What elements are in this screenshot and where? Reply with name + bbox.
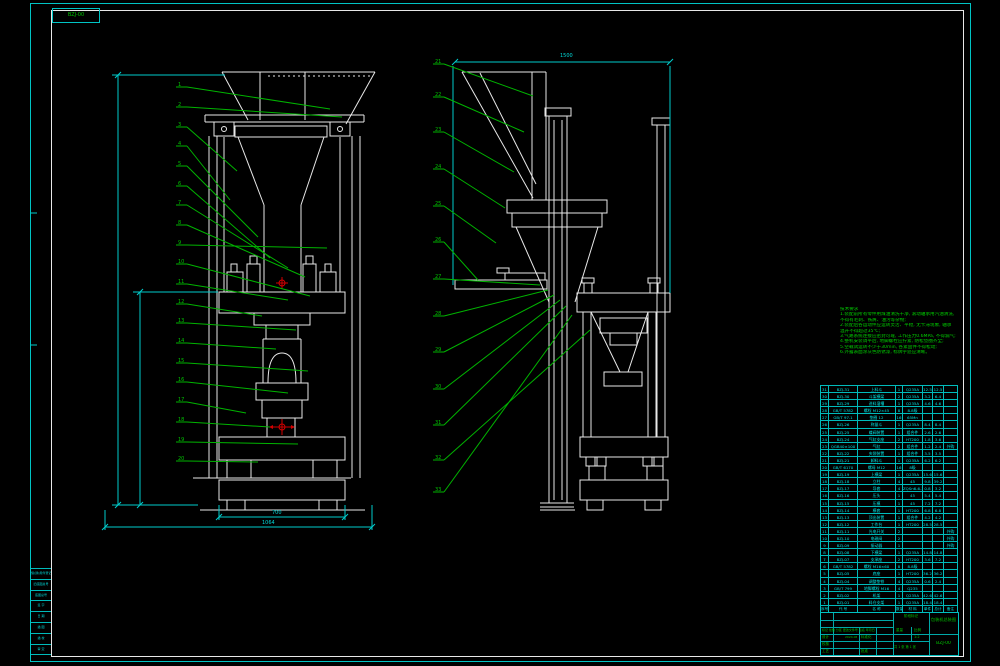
bom-cell: 4 [896, 585, 903, 592]
leader-line [444, 290, 548, 316]
bom-cell: 28.5 [933, 521, 944, 528]
bom-cell: BZJ-14 [829, 507, 858, 514]
bom-cell: 5.4 [923, 492, 933, 499]
bom-cell: 2 [896, 443, 903, 450]
balloon-number: 4 [178, 141, 181, 147]
bom-cell: 7 [821, 556, 829, 563]
bom-cell: 导套 [858, 485, 896, 492]
bom-cell: 进料溜槽 [858, 400, 896, 407]
bom-row: 26BZJ-26称量斗1Q235A8.48.4 [821, 421, 958, 428]
front-view [193, 72, 375, 510]
bom-cell: 14.8 [923, 549, 933, 556]
bom-cell: BZJ-29 [829, 400, 858, 407]
bom-cell: 卸料斗 [858, 457, 896, 464]
dim-inner-width: 700 [272, 511, 282, 516]
bom-cell: GB/T 6170 [829, 464, 858, 471]
balloon-number: 2 [178, 102, 181, 108]
technical-notes: 技术要求1.装配前所有零件用煤油清洗干净, 滚动轴承用汽油清洗, 不得有毛刺、铁… [840, 307, 960, 356]
bom-cell: Q235A [903, 400, 923, 407]
edge-strip-cell: 审 定 [31, 645, 51, 656]
balloon-number: 16 [178, 377, 184, 383]
bom-cell: BZJ-17 [829, 485, 858, 492]
bom-cell: GB/T 5782 [829, 407, 858, 414]
bom-cell: BZJ-01 [829, 599, 858, 606]
bom-cell: 1 [896, 386, 903, 393]
bom-cell: 3.5 [923, 450, 933, 457]
bom-cell: 11 [821, 528, 829, 535]
bom-cell [923, 528, 933, 535]
bom-cell: 1 [896, 500, 903, 507]
bom-cell: 39.2 [933, 478, 944, 485]
bom-cell [944, 414, 958, 421]
bom-cell [944, 492, 958, 499]
bom-cell: Q235A [903, 457, 923, 464]
bom-cell: 24 [821, 436, 829, 443]
bom-cell [944, 421, 958, 428]
leader-line [187, 461, 258, 462]
bom-cell [944, 556, 958, 563]
bom-cell [944, 450, 958, 457]
bom-row: 22BZJ-22夹袋装置1组合件3.53.5 [821, 450, 958, 457]
bom-cell: 31 [821, 386, 829, 393]
bom-cell: 4.2 [923, 514, 933, 521]
bom-cell [933, 535, 944, 542]
bom-row: 8BZJ-08下横梁1Q235A14.814.8 [821, 549, 958, 556]
bom-cell: 1 [896, 507, 903, 514]
bom-cell: 23 [821, 443, 829, 450]
tb-weight: 重量 [896, 628, 903, 633]
bom-cell: BZJ-26 [829, 421, 858, 428]
bom-cell: HT200 [903, 556, 923, 563]
bom-cell: GB/T 799 [829, 585, 858, 592]
balloon-number: 28 [435, 311, 441, 317]
bom-cell: 3.2 [933, 485, 944, 492]
leader-line [444, 300, 560, 389]
tb-approve: 批准 [861, 649, 868, 654]
leader-line [187, 87, 330, 109]
leader-line [187, 363, 308, 371]
balloon-number: 19 [178, 437, 184, 443]
bom-cell [944, 464, 958, 471]
bom-cell [944, 429, 958, 436]
bom-cell: BZJ-16 [829, 492, 858, 499]
bom-cell: 2 [896, 535, 903, 542]
bom-cell [944, 549, 958, 556]
bom-row: 10BZJ-10电磁阀2外购 [821, 535, 958, 542]
bom-cell [944, 407, 958, 414]
edge-strip: 借(通)用件登记旧底图总号底图总号签 字日 期描 图描 校审 定 [31, 568, 51, 656]
bom-cell: 0.6 [923, 578, 933, 585]
bom-cell: 1 [896, 429, 903, 436]
balloon-number: 22 [435, 92, 441, 98]
bom-cell: 压头 [858, 492, 896, 499]
bom-cell [923, 407, 933, 414]
bom-cell: 15 [821, 500, 829, 507]
bom-cell: 4 [821, 578, 829, 585]
leader-line [187, 442, 298, 444]
bom-cell: 16 [896, 414, 903, 421]
bom-cell: 压模 [858, 500, 896, 507]
tb-check: 校核 [822, 642, 829, 647]
bom-cell: 1 [896, 599, 903, 606]
bom-cell: 气缸 [858, 443, 896, 450]
bom-cell: 1 [896, 471, 903, 478]
bom-cell [933, 414, 944, 421]
bom-cell [944, 386, 958, 393]
tb-rev-row: 标记 处数 分区 更改文件号 签名 年月日 [822, 628, 892, 632]
bom-cell: 1 [821, 599, 829, 606]
edge-strip-cell: 日 期 [31, 612, 51, 623]
bom-cell: 模套 [858, 507, 896, 514]
bom-cell [944, 485, 958, 492]
tb-standard: 标准化 [861, 635, 872, 640]
bom-cell: 4.6 [933, 400, 944, 407]
edge-strip-cell: 签 字 [31, 601, 51, 612]
bom-cell: BZJ-08 [829, 549, 858, 556]
bom-cell: 1 [896, 549, 903, 556]
leader-line [187, 245, 327, 248]
bom-cell: BZJ-02 [829, 592, 858, 599]
bom-cell: 6.8 [933, 507, 944, 514]
dim-outer-width: 1064 [262, 521, 275, 526]
bom-cell [944, 471, 958, 478]
tb-drawing-no: BZJ-00 [930, 641, 957, 646]
bom-cell: Q235 [903, 585, 923, 592]
bom-cell: 振动器 [858, 542, 896, 549]
bom-cell: 8 [896, 563, 903, 570]
bom-cell: BZJ-31 [829, 386, 858, 393]
balloon-number: 26 [435, 237, 441, 243]
bom-cell: Q235A [903, 578, 923, 585]
edge-strip-cell: 旧底图总号 [31, 580, 51, 591]
bom-row: 14BZJ-14模套1HT2006.86.8 [821, 507, 958, 514]
bom-cell: 外购 [944, 542, 958, 549]
bom-cell: 27 [821, 414, 829, 421]
bom-cell: GB/T 5782 [829, 563, 858, 570]
balloon-number: 9 [178, 240, 181, 246]
bom-cell [944, 592, 958, 599]
bom-cell: 14 [821, 507, 829, 514]
bom-cell: 上料斗 [858, 386, 896, 393]
bom-cell: 8 [896, 407, 903, 414]
tb-design: 设计 [822, 635, 829, 640]
bom-cell: BZJ-21 [829, 457, 858, 464]
bom-cell: 45 [903, 500, 923, 507]
bom-cell [944, 400, 958, 407]
bom-cell: 料仓支架 [858, 599, 896, 606]
bom-cell: 18.4 [933, 599, 944, 606]
bom-cell: 9 [821, 542, 829, 549]
bom-cell [933, 585, 944, 592]
bom-cell: BZJ-04 [829, 578, 858, 585]
bom-cell: 29 [821, 400, 829, 407]
bom-cell: 42.6 [933, 592, 944, 599]
bom-cell: 2 [821, 592, 829, 599]
bom-cell: 组合件 [903, 429, 923, 436]
bom-cell: BZJ-12 [829, 521, 858, 528]
bom-cell: Q235A [903, 386, 923, 393]
bom-cell: BZJ-22 [829, 450, 858, 457]
bom-cell: 12.5 [933, 386, 944, 393]
balloon-number: 25 [435, 201, 441, 207]
bom-row: 4BZJ-04调整垫铁4Q235A0.62.4 [821, 578, 958, 585]
bom-cell: 18.4 [923, 599, 933, 606]
bom-cell [923, 464, 933, 471]
bom-row: 1BZJ-01料仓支架1Q235A18.418.4 [821, 599, 958, 606]
bom-cell: 1 [896, 457, 903, 464]
bom-cell: 25 [821, 429, 829, 436]
bom-row: 12BZJ-12工作台1HT20028.528.5 [821, 521, 958, 528]
bom-cell [923, 542, 933, 549]
bom-row: 19BZJ-19上横梁1Q235A15.615.6 [821, 471, 958, 478]
bom-cell: 3 [821, 585, 829, 592]
bom-cell [923, 585, 933, 592]
bom-cell: 36.2 [923, 570, 933, 577]
bom-cell: 2 [896, 528, 903, 535]
bom-cell: 17 [821, 485, 829, 492]
bom-cell: 3.6 [923, 556, 933, 563]
bom-cell: 5 [821, 570, 829, 577]
bom-cell [903, 535, 923, 542]
bom-row: 23QGB40×100气缸2组合件1.22.4外购 [821, 443, 958, 450]
bom-cell: 8.4 [933, 421, 944, 428]
bom-cell: 18 [821, 478, 829, 485]
bom-row: 2BZJ-02机架1Q235A42.642.6 [821, 592, 958, 599]
bom-cell: 6.2 [923, 457, 933, 464]
bom-cell: 1 [896, 521, 903, 528]
leader-lines: 1234567891011121314151617181920212223242… [176, 59, 590, 493]
bom-row: 5BZJ-05底座1HT20036.236.2 [821, 570, 958, 577]
bom-cell: 8 [821, 549, 829, 556]
bom-cell [944, 500, 958, 507]
bom-cell: 组合件 [903, 443, 923, 450]
bom-cell: 22 [821, 450, 829, 457]
bom-row: 17BZJ-17导套4ZQSn6-6-30.83.2 [821, 485, 958, 492]
bom-row: 27GB/T 97.1垫圈 121665Mn [821, 414, 958, 421]
bom-cell: 13 [821, 514, 829, 521]
bom-cell [944, 478, 958, 485]
bom-row: 25BZJ-25蝶阀装置1组合件2.62.6 [821, 429, 958, 436]
bom-cell [944, 570, 958, 577]
bom-row: 31BZJ-31上料斗1Q235A12.512.5 [821, 386, 958, 393]
balloon-number: 21 [435, 59, 441, 65]
bom-cell [923, 414, 933, 421]
bom-cell: 1 [896, 542, 903, 549]
bom-table: 31BZJ-31上料斗1Q235A12.512.530BZJ-30斗架横梁2Q2… [820, 385, 958, 613]
bom-cell: 外购 [944, 535, 958, 542]
bom-cell [944, 507, 958, 514]
bom-cell: 6.8 [923, 507, 933, 514]
bom-cell: 6.2 [933, 457, 944, 464]
bom-cell: 6.4 [933, 393, 944, 400]
bom-cell: 2 [896, 556, 903, 563]
bom-cell: 28 [821, 407, 829, 414]
balloon-number: 1 [178, 82, 181, 88]
bom-cell [944, 599, 958, 606]
bom-row: 24BZJ-24气缸支座2HT2001.83.6 [821, 436, 958, 443]
bom-cell: QGB40×100 [829, 443, 858, 450]
bom-cell: BZJ-13 [829, 514, 858, 521]
cad-sheet: BZJ-00 [0, 0, 1000, 666]
bom-cell: BZJ-19 [829, 471, 858, 478]
bom-cell: Q235A [903, 471, 923, 478]
bom-cell: 10 [821, 535, 829, 542]
bom-cell [944, 521, 958, 528]
bom-cell: 19 [821, 471, 829, 478]
bom-cell: 16 [821, 492, 829, 499]
leader-line [444, 295, 554, 352]
balloon-number: 20 [178, 456, 184, 462]
leader-line [444, 97, 524, 132]
bom-cell: 底座 [858, 570, 896, 577]
bom-row: 29BZJ-29进料溜槽1Q235A4.64.6 [821, 400, 958, 407]
bom-cell: 4.2 [933, 514, 944, 521]
bom-cell: 5.4 [933, 492, 944, 499]
bom-cell: 8.4 [923, 421, 933, 428]
side-view [455, 72, 670, 510]
bom-row: 13BZJ-13顶出装置1组合件4.24.2 [821, 514, 958, 521]
bom-cell: 0.8 [923, 485, 933, 492]
tb-scale: 比例 [914, 628, 921, 633]
bom-cell: BZJ-24 [829, 436, 858, 443]
balloon-number: 32 [435, 455, 441, 461]
bom-cell: 下横梁 [858, 549, 896, 556]
bom-cell: ZQSn6-6-3 [903, 485, 923, 492]
bom-cell: 2 [896, 436, 903, 443]
bom-cell: 20 [821, 464, 829, 471]
tb-scale-value: 1:2 [914, 635, 920, 639]
bom-cell: 1 [896, 450, 903, 457]
leader-line [187, 264, 310, 296]
bom-cell: 3.6 [933, 436, 944, 443]
bom-cell: 1 [896, 570, 903, 577]
bom-cell: 1.8 [923, 436, 933, 443]
bom-cell: Q235A [903, 421, 923, 428]
bom-cell [944, 436, 958, 443]
bom-cell: 65Mn [903, 414, 923, 421]
bom-cell: Q235A [903, 592, 923, 599]
bom-cell: 8级 [903, 464, 923, 471]
bom-cell: 地脚螺栓 M16 [858, 585, 896, 592]
bom-cell: Q235A [903, 599, 923, 606]
leader-line [187, 382, 288, 393]
bom-cell: 42.6 [923, 592, 933, 599]
bom-cell: 螺栓 M16×60 [858, 563, 896, 570]
bom-row: 21BZJ-21卸料斗1Q235A6.26.2 [821, 457, 958, 464]
bom-cell: 1 [896, 514, 903, 521]
bom-cell [903, 528, 923, 535]
balloon-number: 14 [178, 338, 184, 344]
bom-cell: 顶出装置 [858, 514, 896, 521]
bom-cell: 螺栓 M12×45 [858, 407, 896, 414]
bom-cell: 7.2 [933, 556, 944, 563]
bom-cell: 15.6 [933, 471, 944, 478]
bom-cell: BZJ-05 [829, 570, 858, 577]
balloon-number: 24 [435, 164, 441, 170]
bom-cell [933, 542, 944, 549]
leader-line [444, 242, 478, 280]
leader-line [187, 304, 262, 316]
bom-cell: 7.2 [933, 500, 944, 507]
bom-cell: BZJ-10 [829, 535, 858, 542]
bom-cell: 21 [821, 457, 829, 464]
bom-cell: 2.4 [933, 578, 944, 585]
bom-cell: 1 [896, 421, 903, 428]
bom-cell: 9.8 [923, 478, 933, 485]
bom-cell: 垫圈 12 [858, 414, 896, 421]
balloon-number: 3 [178, 122, 181, 128]
bom-row: 15BZJ-15压模1457.27.2 [821, 500, 958, 507]
leader-line [187, 422, 270, 427]
bom-cell: 12.5 [923, 386, 933, 393]
bom-cell: 蝶阀装置 [858, 429, 896, 436]
title-block: 标记 处数 分区 更改文件号 签名 年月日 设计 2024.06 校核 工艺 标… [820, 612, 959, 656]
tb-process: 工艺 [822, 649, 829, 654]
bom-cell: 16 [896, 464, 903, 471]
bom-row: 9BZJ-09振动器1外购 [821, 542, 958, 549]
leader-line [187, 225, 305, 277]
bom-cell: 2.6 [923, 429, 933, 436]
bom-cell: BZJ-25 [829, 429, 858, 436]
note-line: 6.外露表面涂灰色防锈漆, 标牌字迹应清晰。 [840, 350, 960, 355]
bom-cell [944, 393, 958, 400]
edge-strip-cell: 描 图 [31, 623, 51, 634]
bom-cell: 称量斗 [858, 421, 896, 428]
bom-cell: 工作台 [858, 521, 896, 528]
bom-cell: 26 [821, 421, 829, 428]
bom-cell: 夹袋装置 [858, 450, 896, 457]
bom-cell: 1 [896, 492, 903, 499]
bom-cell: 螺母 M12 [858, 464, 896, 471]
bom-cell: BZJ-07 [829, 556, 858, 563]
bom-cell: 调整垫铁 [858, 578, 896, 585]
balloon-number: 12 [178, 299, 184, 305]
tb-stage: 阶段标记 [895, 614, 927, 619]
bom-cell: 2.6 [933, 429, 944, 436]
bom-cell: 30 [821, 393, 829, 400]
bom-cell: 45 [903, 492, 923, 499]
bom-cell: 36.2 [933, 570, 944, 577]
bom-cell: GB/T 97.1 [829, 414, 858, 421]
bom-cell: 6 [821, 563, 829, 570]
bom-cell: BZJ-18 [829, 478, 858, 485]
bom-cell: 1 [896, 592, 903, 599]
datum-marks [269, 277, 295, 435]
bom-cell: 4 [896, 485, 903, 492]
bom-cell [923, 563, 933, 570]
bom-cell: 8.8级 [903, 563, 923, 570]
bom-cell: 15.6 [923, 471, 933, 478]
bom-cell: BZJ-11 [829, 528, 858, 535]
tb-drawing-title: 包装机总装图 [930, 617, 957, 622]
bom-row: 20GB/T 6170螺母 M12168级 [821, 464, 958, 471]
leader-line [444, 206, 496, 243]
bom-cell: BZJ-30 [829, 393, 858, 400]
bom-cell: 斗架横梁 [858, 393, 896, 400]
leader-line [444, 64, 533, 96]
bom-row: 3GB/T 799地脚螺栓 M164Q235 [821, 585, 958, 592]
bom-cell: 电磁阀 [858, 535, 896, 542]
leader-line [444, 330, 590, 460]
bom-cell: 组合件 [903, 450, 923, 457]
bom-cell: 4.6 [923, 400, 933, 407]
dim-top-width: 1500 [560, 54, 573, 59]
bom-cell [944, 514, 958, 521]
bom-row: 28GB/T 5782螺栓 M12×4588.8级 [821, 407, 958, 414]
bom-cell: 8.8级 [903, 407, 923, 414]
bom-cell: 7.2 [923, 500, 933, 507]
bom-cell: 外购 [944, 528, 958, 535]
